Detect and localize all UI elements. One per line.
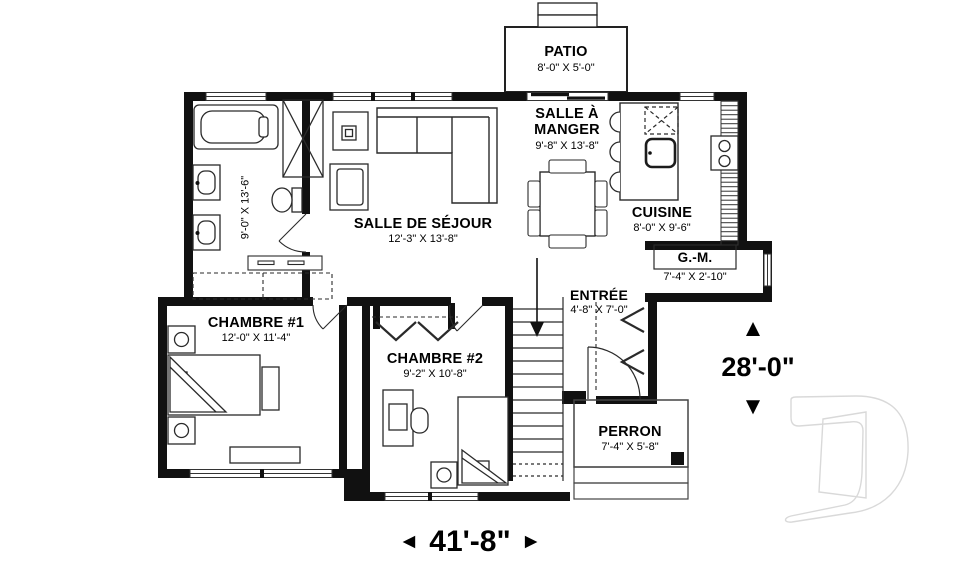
patio-label: PATIO <box>506 44 626 60</box>
width-dimension: 41'-8" <box>429 525 510 559</box>
bedroom2-closet <box>372 317 458 340</box>
bathroom-dims: 9'-0" X 13'-6" <box>240 148 253 268</box>
dining-room-label: SALLE À MANGER <box>512 106 622 138</box>
entry-label: ENTRÉE <box>549 287 649 303</box>
sectional-sofa <box>377 108 497 203</box>
nightstand <box>431 462 457 488</box>
kitchen-label: CUISINE <box>602 205 722 221</box>
bedroom2-furniture <box>383 390 508 488</box>
living-room-label: SALLE DE SÉJOUR <box>343 216 503 232</box>
arrow-down-icon: ▼ <box>733 394 773 420</box>
porch-label: PERRON <box>570 424 690 440</box>
patio-sliding-door <box>527 93 608 101</box>
armchair <box>330 164 368 210</box>
bench <box>262 367 279 410</box>
perron-steps <box>574 467 688 499</box>
pantry-label: G.-M. <box>654 250 736 266</box>
bedroom1-label: CHAMBRE #1 <box>186 315 326 331</box>
desk-chair <box>411 408 428 433</box>
kitchen-dims: 8'-0" X 9'-6" <box>602 222 722 235</box>
bedroom1-furniture <box>168 326 300 463</box>
bedroom2-dims: 9'-2" X 10'-8" <box>365 368 505 381</box>
bedroom2-label: CHAMBRE #2 <box>365 351 505 367</box>
patio-dims: 8'-0" X 5'-0" <box>506 62 626 75</box>
dining-room-dims: 9'-8" X 13'-8" <box>507 140 627 153</box>
bathroom-sink-2 <box>193 215 220 250</box>
porch-dims: 7'-4" X 5'-8" <box>570 441 690 454</box>
dining-table <box>540 172 595 236</box>
logo-d-watermark <box>785 396 908 522</box>
entry-dims: 4'-8" X 7'-0" <box>549 304 649 317</box>
arrow-left-icon: ◄ <box>399 525 420 559</box>
bathroom-sink-1 <box>193 165 220 200</box>
bedroom1-dims: 12'-0" X 11'-4" <box>186 332 326 345</box>
island-sink <box>646 139 675 167</box>
pantry-dims: 7'-4" X 2'-10" <box>644 271 746 284</box>
stairs-direction-arrow <box>530 258 544 337</box>
living-room-dims: 12'-3" X 13'-8" <box>343 233 503 246</box>
width-dimension-group: ◄ 41'-8" ► <box>375 525 565 559</box>
kitchen-counter <box>721 101 738 245</box>
floor-plan: PATIO 8'-0" X 5'-0" SALLE À MANGER 9'-8"… <box>0 0 960 569</box>
arrow-up-icon: ▲ <box>733 316 773 342</box>
patio-steps <box>538 3 597 27</box>
bathtub <box>194 105 278 149</box>
side-table-lamp <box>333 112 368 150</box>
stove <box>711 136 738 170</box>
bathroom-door <box>279 214 306 252</box>
dresser <box>230 447 300 463</box>
height-dimension: 28'-0" <box>706 352 810 383</box>
hall-storage <box>193 256 332 299</box>
arrow-right-icon: ► <box>521 525 542 559</box>
floor-plan-drawing <box>0 0 960 569</box>
toilet <box>272 188 302 212</box>
nightstand <box>168 417 195 444</box>
